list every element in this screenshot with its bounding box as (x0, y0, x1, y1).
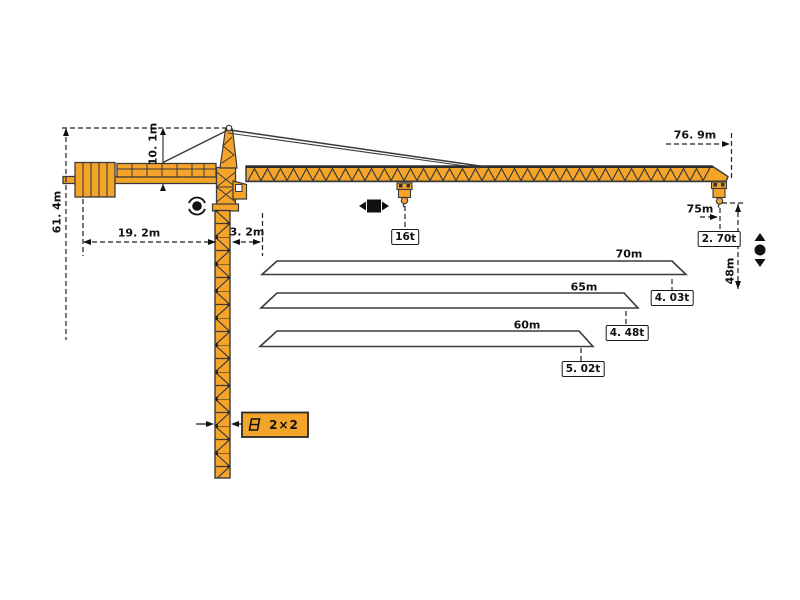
hook-travel-icon (755, 233, 766, 267)
operator-cab (233, 181, 247, 199)
main-jib (246, 166, 728, 182)
trolley-tip (712, 182, 727, 208)
crane-diagram-canvas: 61. 4m 10. 1m 19. 2m 3. 2m 76. 9m 75m 48… (0, 0, 800, 600)
dim-tip-distance-label: 76. 9m (674, 130, 716, 141)
max-load-badge: 16t (391, 229, 419, 245)
mast-section-label: 2×2 (269, 419, 299, 431)
counter-jib (63, 163, 218, 198)
dim-jib-root-offset-label: 3. 2m (230, 227, 265, 238)
load-bar-60m-length-label: 60m (514, 320, 541, 331)
load-bar-70m-capacity-badge: 4. 03t (651, 290, 694, 306)
load-bar-60m-capacity-badge: 5. 02t (562, 361, 605, 377)
pendant-lines (163, 130, 487, 168)
trolley-mid (397, 183, 412, 207)
hook-icon (401, 197, 407, 203)
load-bar-65m-length-label: 65m (571, 282, 598, 293)
load-bar-70m-length-label: 70m (616, 249, 643, 260)
apex-pin (226, 125, 231, 130)
load-bar-60m (260, 331, 593, 347)
dim-max-radius-label: 75m (687, 204, 714, 215)
trolley-travel-icon (359, 200, 389, 213)
hook-icon (716, 198, 722, 204)
load-bar-65m (261, 293, 638, 308)
load-bar-65m-capacity-badge: 4. 48t (606, 325, 649, 341)
slewing-icon (189, 197, 205, 214)
tower-mast (215, 211, 230, 479)
load-bar-70m (262, 261, 686, 275)
dim-counter-jib-label: 19. 2m (118, 228, 160, 239)
dim-hook-height-label: 48m (725, 258, 736, 285)
tip-load-badge: 2. 70t (698, 231, 741, 247)
dim-tower-head-height-label: 10. 1m (148, 123, 159, 165)
dim-total-height-label: 61. 4m (52, 191, 63, 233)
